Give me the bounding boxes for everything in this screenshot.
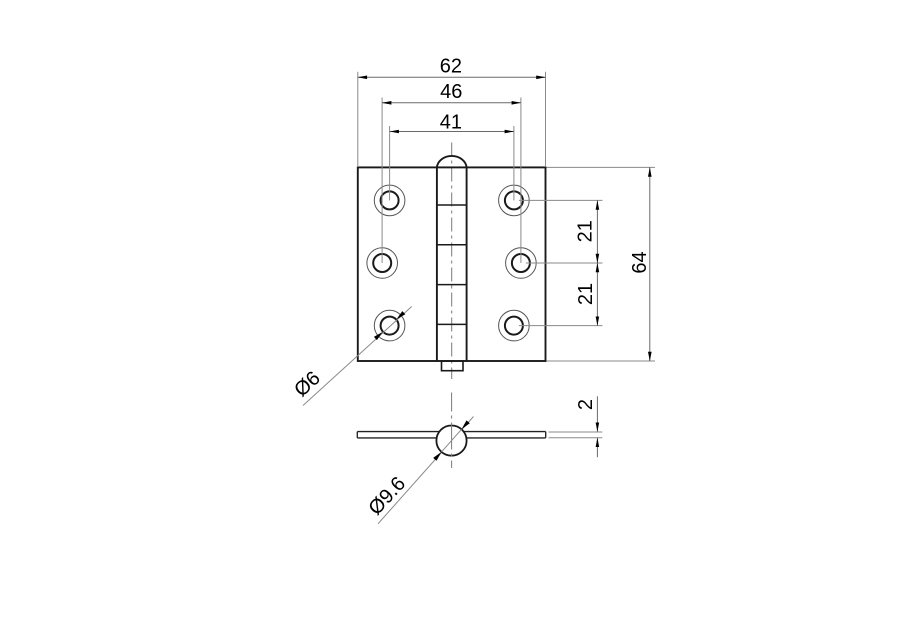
svg-text:21: 21 <box>575 283 597 305</box>
svg-text:2: 2 <box>575 399 597 410</box>
svg-text:41: 41 <box>440 112 462 134</box>
svg-text:62: 62 <box>440 56 462 78</box>
svg-text:46: 46 <box>440 81 462 103</box>
svg-text:21: 21 <box>575 220 597 242</box>
svg-text:64: 64 <box>629 251 651 273</box>
